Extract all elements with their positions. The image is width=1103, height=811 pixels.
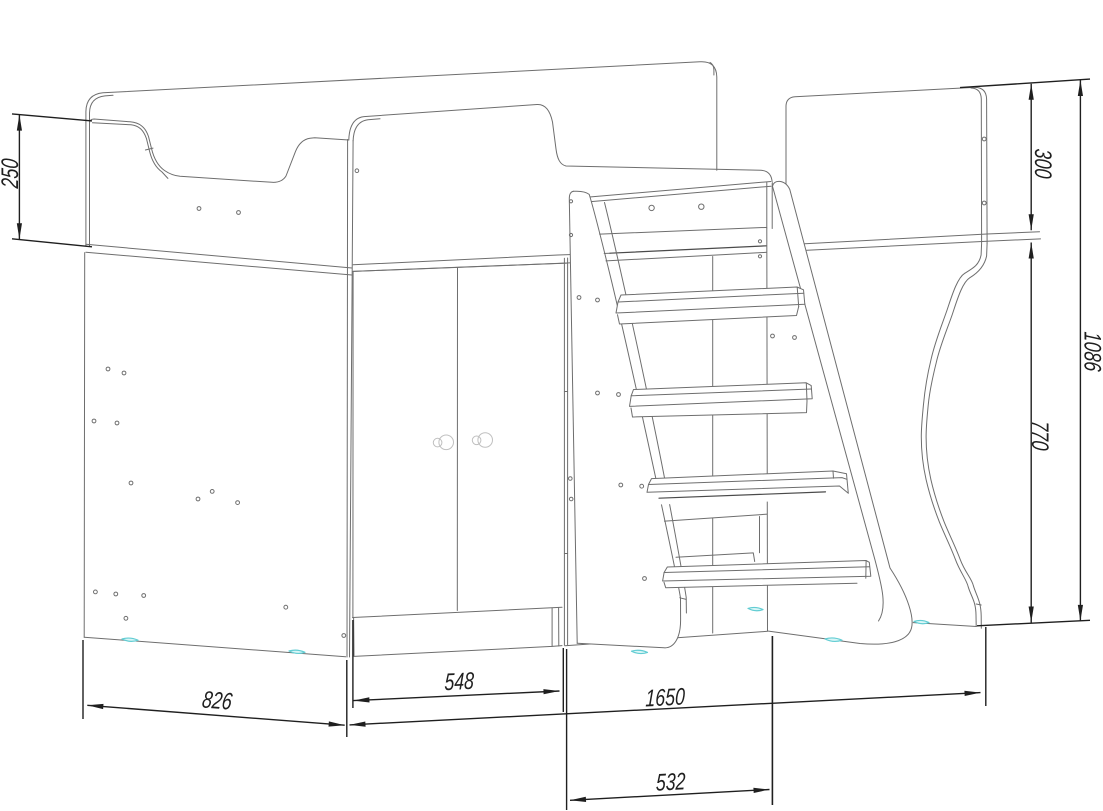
svg-text:1086: 1086 — [1079, 331, 1103, 373]
svg-text:770: 770 — [1026, 420, 1052, 452]
svg-text:250: 250 — [0, 157, 24, 190]
svg-text:300: 300 — [1029, 148, 1055, 180]
svg-text:826: 826 — [200, 687, 234, 715]
svg-text:532: 532 — [656, 769, 686, 797]
svg-text:1650: 1650 — [645, 684, 685, 712]
svg-text:548: 548 — [444, 668, 475, 696]
